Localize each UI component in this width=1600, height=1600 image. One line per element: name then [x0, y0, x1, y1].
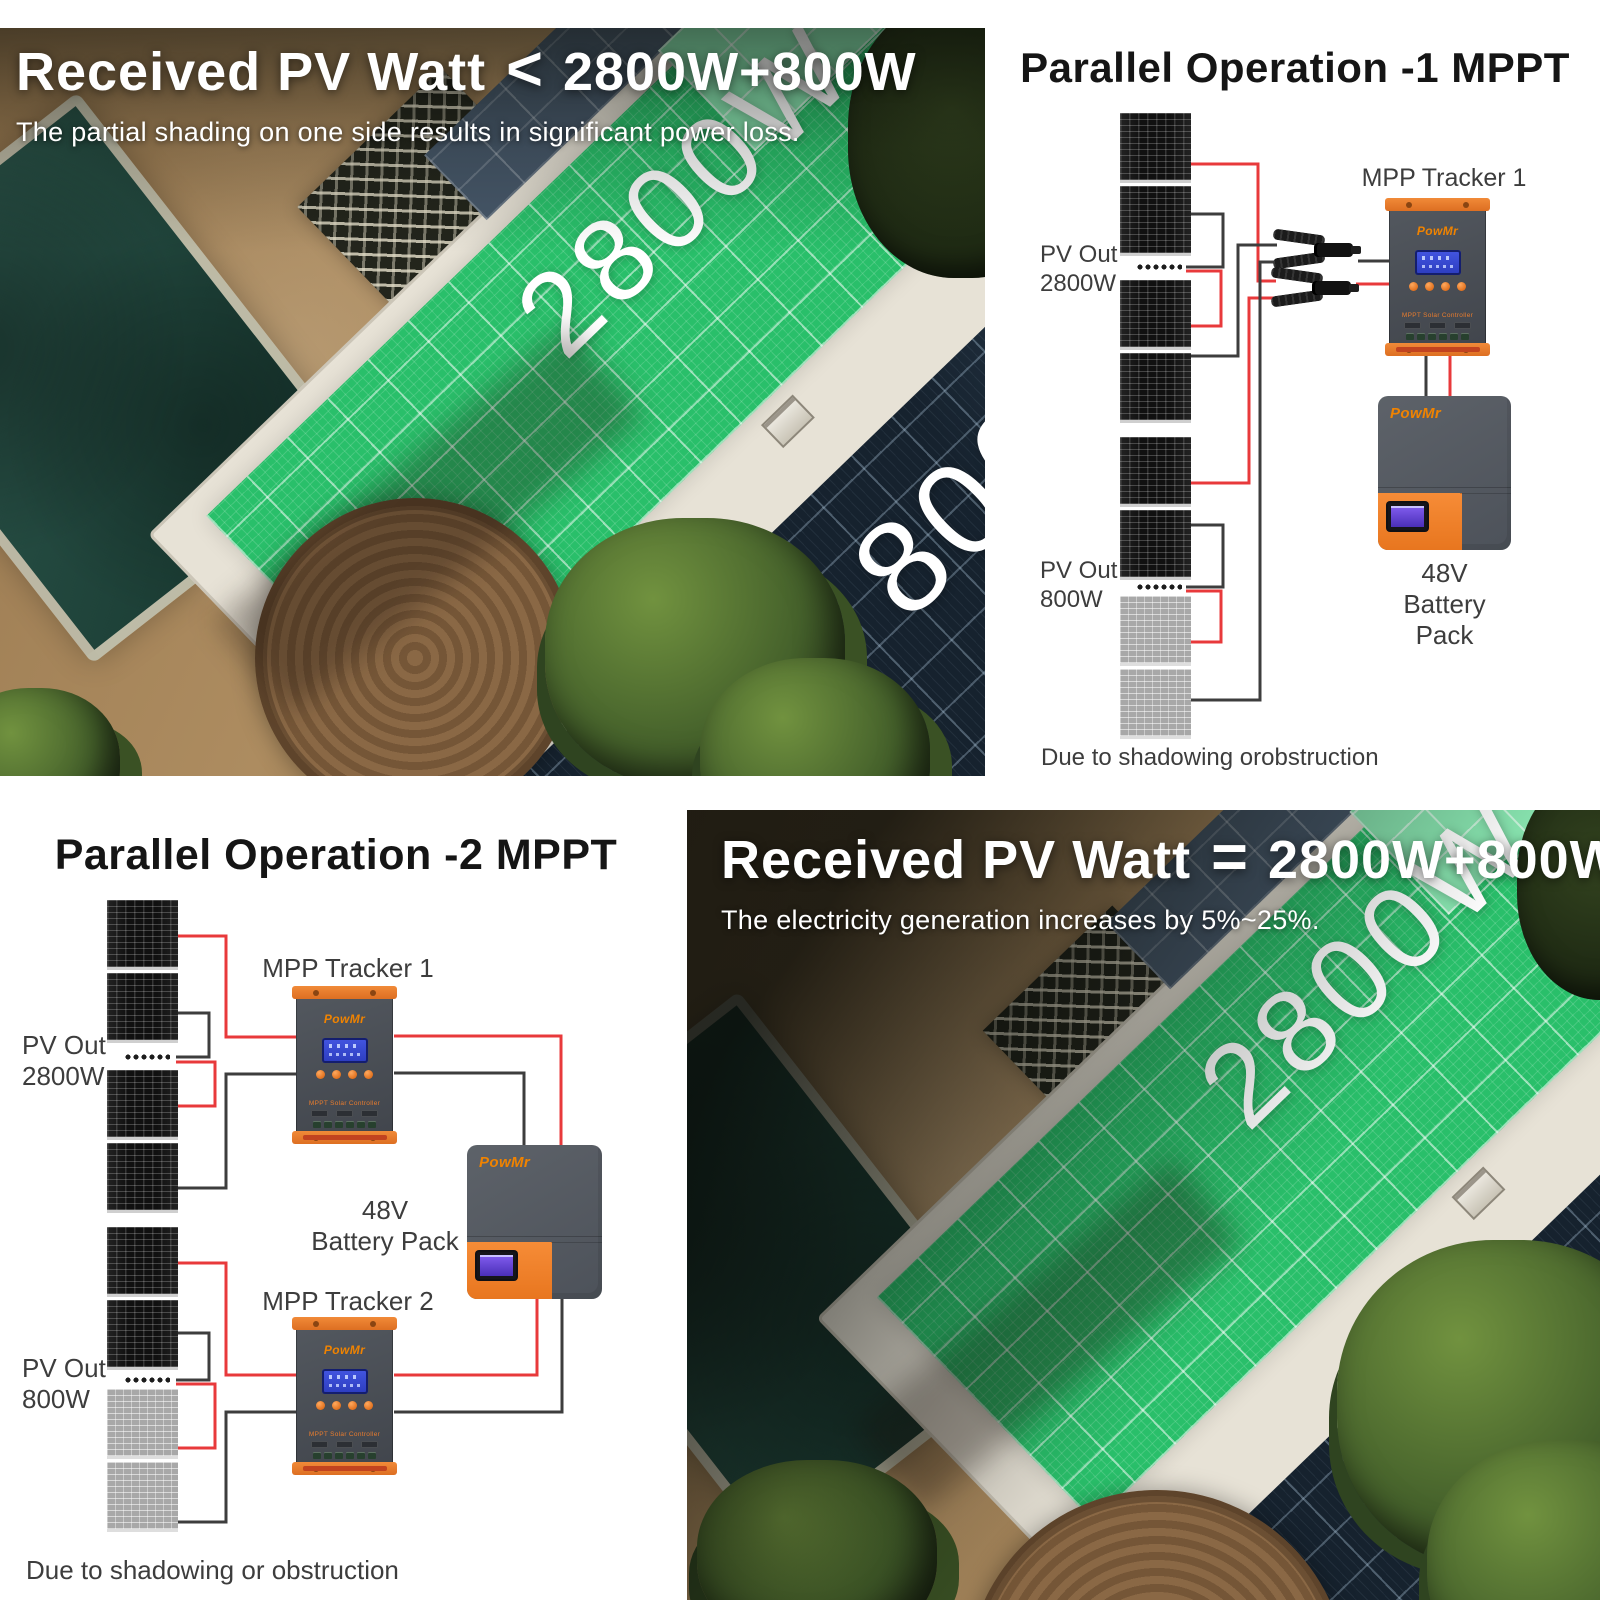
solar-panel [107, 1070, 178, 1140]
battery-front-panel [1378, 493, 1462, 550]
controller-terminals [296, 1452, 393, 1459]
mppt-charge-controller: PowMr MPPT Solar Controller [296, 1317, 393, 1475]
title-prefix: Received PV Watt [721, 829, 1191, 891]
battery-display [1388, 503, 1427, 530]
pv-out-2800w-label: PV Out 2800W [1040, 240, 1117, 298]
controller-sublabel: MPPT Solar Controller [296, 1100, 393, 1107]
series-continuation-dots [124, 1053, 170, 1061]
battery-voltage: 48V [285, 1195, 485, 1226]
photo-title: Received PV Watt = 2800W+800W [721, 824, 1600, 896]
shaded-solar-panel [107, 1462, 178, 1532]
controller-buttons [296, 1070, 393, 1079]
battery-pack-label: 48V Battery Pack [285, 1195, 485, 1257]
solar-panel [107, 900, 178, 970]
brand-logo: PowMr [1389, 224, 1486, 238]
pv-out-text: PV Out [1040, 556, 1117, 585]
battery-display [477, 1252, 516, 1279]
mppt-charge-controller: PowMr MPPT Solar Controller [1389, 198, 1486, 356]
mpp-tracker-2-label: MPP Tracker 2 [248, 1286, 448, 1317]
solar-panel [1120, 510, 1191, 580]
battery-front-panel [467, 1242, 552, 1299]
controller-buttons [296, 1401, 393, 1410]
controller-sublabel: MPPT Solar Controller [296, 1431, 393, 1438]
series-continuation-dots [124, 1376, 170, 1384]
controller-port-icons [296, 1441, 393, 1448]
mpp-tracker-1-label: MPP Tracker 1 [1344, 164, 1544, 193]
pv-out-watts: 2800W [1040, 269, 1117, 298]
mount-flange [292, 986, 397, 999]
less-than-symbol: < [506, 33, 543, 105]
solar-panel [1120, 353, 1191, 423]
battery-voltage: 48V [1378, 558, 1511, 589]
controller-buttons [1389, 282, 1486, 291]
shading-note: Due to shadowing or obstruction [26, 1555, 399, 1586]
solar-panel [107, 1143, 178, 1213]
pv-out-watts: 800W [22, 1384, 106, 1415]
controller-lcd [1415, 250, 1461, 275]
connector-body [1315, 281, 1351, 295]
pv-out-text: PV Out [22, 1353, 106, 1384]
mount-flange [292, 1462, 397, 1475]
title-watt-value: 2800W+800W [1268, 829, 1600, 891]
solar-panel [1120, 437, 1191, 507]
infographic-canvas: 2800W 800W Received PV Watt < 2800W+800W… [0, 0, 1600, 1600]
y-branch-connector [1271, 266, 1359, 310]
connector-output [1351, 246, 1361, 254]
controller-lcd [322, 1038, 368, 1063]
controller-terminals [1389, 333, 1486, 340]
diagram-one-mppt: Parallel Operation -1 MPPT PV Out [990, 0, 1600, 780]
brand-logo: PowMr [1390, 405, 1441, 422]
title-watt-value: 2800W+800W [563, 41, 917, 103]
pv-out-text: PV Out [22, 1030, 106, 1061]
solar-panel [1120, 113, 1191, 183]
battery-pack-text: Battery Pack [1378, 589, 1511, 651]
title-prefix: Received PV Watt [16, 41, 486, 103]
solar-panel [1120, 280, 1191, 350]
pv-out-800w-label: PV Out 800W [1040, 556, 1117, 614]
mount-flange [1385, 198, 1490, 211]
shaded-solar-panel [1120, 596, 1191, 666]
pv-out-watts: 800W [1040, 585, 1117, 614]
brand-logo: PowMr [296, 1343, 393, 1357]
battery-pack: PowMr [467, 1145, 602, 1299]
shaded-solar-panel [1120, 669, 1191, 739]
pv-out-2800w-label: PV Out 2800W [22, 1030, 106, 1092]
shaded-solar-panel [107, 1389, 178, 1459]
controller-lcd [322, 1369, 368, 1394]
wiring-lines [990, 0, 1600, 780]
photo-subtitle: The partial shading on one side results … [16, 117, 917, 148]
shading-note: Due to shadowing orobstruction [1041, 744, 1379, 772]
brand-logo: PowMr [479, 1154, 530, 1171]
connector-output [1349, 284, 1359, 292]
series-continuation-dots [1136, 583, 1182, 591]
mount-flange [1385, 343, 1490, 356]
mount-flange [292, 1131, 397, 1144]
photo-caption: Received PV Watt = 2800W+800W The electr… [721, 824, 1600, 936]
controller-terminals [296, 1121, 393, 1128]
aerial-photo-partial-shading: 2800W 800W Received PV Watt < 2800W+800W… [0, 28, 985, 776]
photo-title: Received PV Watt < 2800W+800W [16, 36, 917, 108]
diagram-two-mppt: Parallel Operation -2 MPPT PV Out [0, 776, 672, 1600]
series-continuation-dots [1136, 263, 1182, 271]
connector-body [1317, 243, 1353, 257]
photo-caption: Received PV Watt < 2800W+800W The partia… [16, 36, 917, 148]
equals-symbol: = [1211, 821, 1248, 893]
solar-panel [107, 1227, 178, 1297]
solar-panel [107, 1300, 178, 1370]
aerial-photo-full-harvest: 2800W 800W Received PV Watt = 2800W+800W… [687, 810, 1600, 1600]
controller-sublabel: MPPT Solar Controller [1389, 312, 1486, 319]
pv-out-watts: 2800W [22, 1061, 106, 1092]
solar-panel [107, 973, 178, 1043]
brand-logo: PowMr [296, 1012, 393, 1026]
controller-port-icons [1389, 322, 1486, 329]
battery-pack-text: Battery Pack [285, 1226, 485, 1257]
mpp-tracker-1-label: MPP Tracker 1 [248, 953, 448, 984]
battery-pack: PowMr [1378, 396, 1511, 550]
mppt-charge-controller: PowMr MPPT Solar Controller [296, 986, 393, 1144]
photo-subtitle: The electricity generation increases by … [721, 905, 1600, 936]
pv-out-800w-label: PV Out 800W [22, 1353, 106, 1415]
controller-port-icons [296, 1110, 393, 1117]
pv-out-text: PV Out [1040, 240, 1117, 269]
mount-flange [292, 1317, 397, 1330]
battery-pack-label: 48V Battery Pack [1378, 558, 1511, 651]
solar-panel [1120, 186, 1191, 256]
